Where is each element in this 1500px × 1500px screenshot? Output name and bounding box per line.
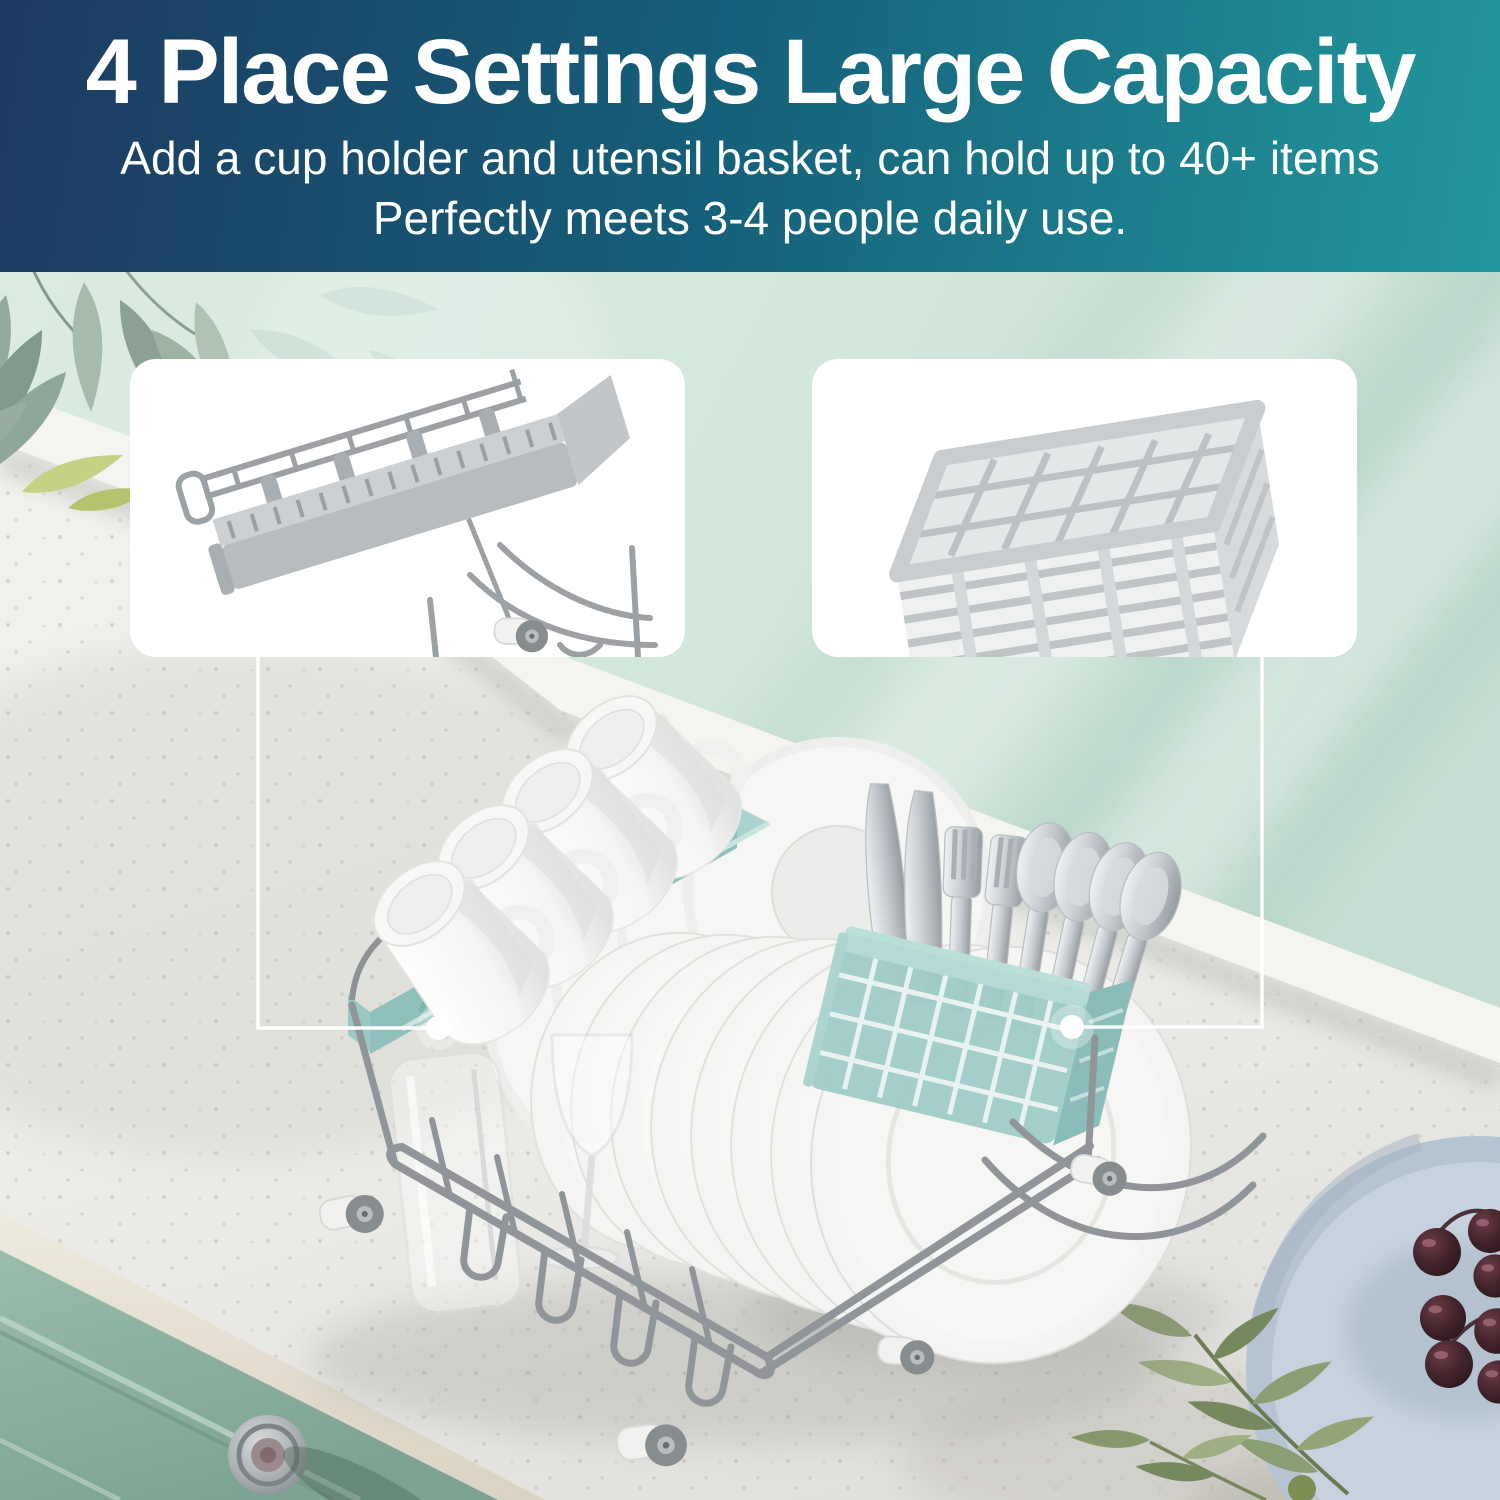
cup-holder-inset-card — [130, 342, 685, 704]
subheadline-line2: Perfectly meets 3-4 people daily use. — [0, 188, 1500, 248]
headline: 4 Place Settings Large Capacity — [0, 0, 1500, 122]
product-image: 4 Place Settings Large Capacity Add a cu… — [0, 0, 1500, 1500]
subheadline-line1: Add a cup holder and utensil basket, can… — [0, 128, 1500, 188]
callout-dot-right — [1060, 1015, 1084, 1039]
header-banner: 4 Place Settings Large Capacity Add a cu… — [0, 0, 1500, 272]
callout-dot-left — [426, 1016, 450, 1040]
